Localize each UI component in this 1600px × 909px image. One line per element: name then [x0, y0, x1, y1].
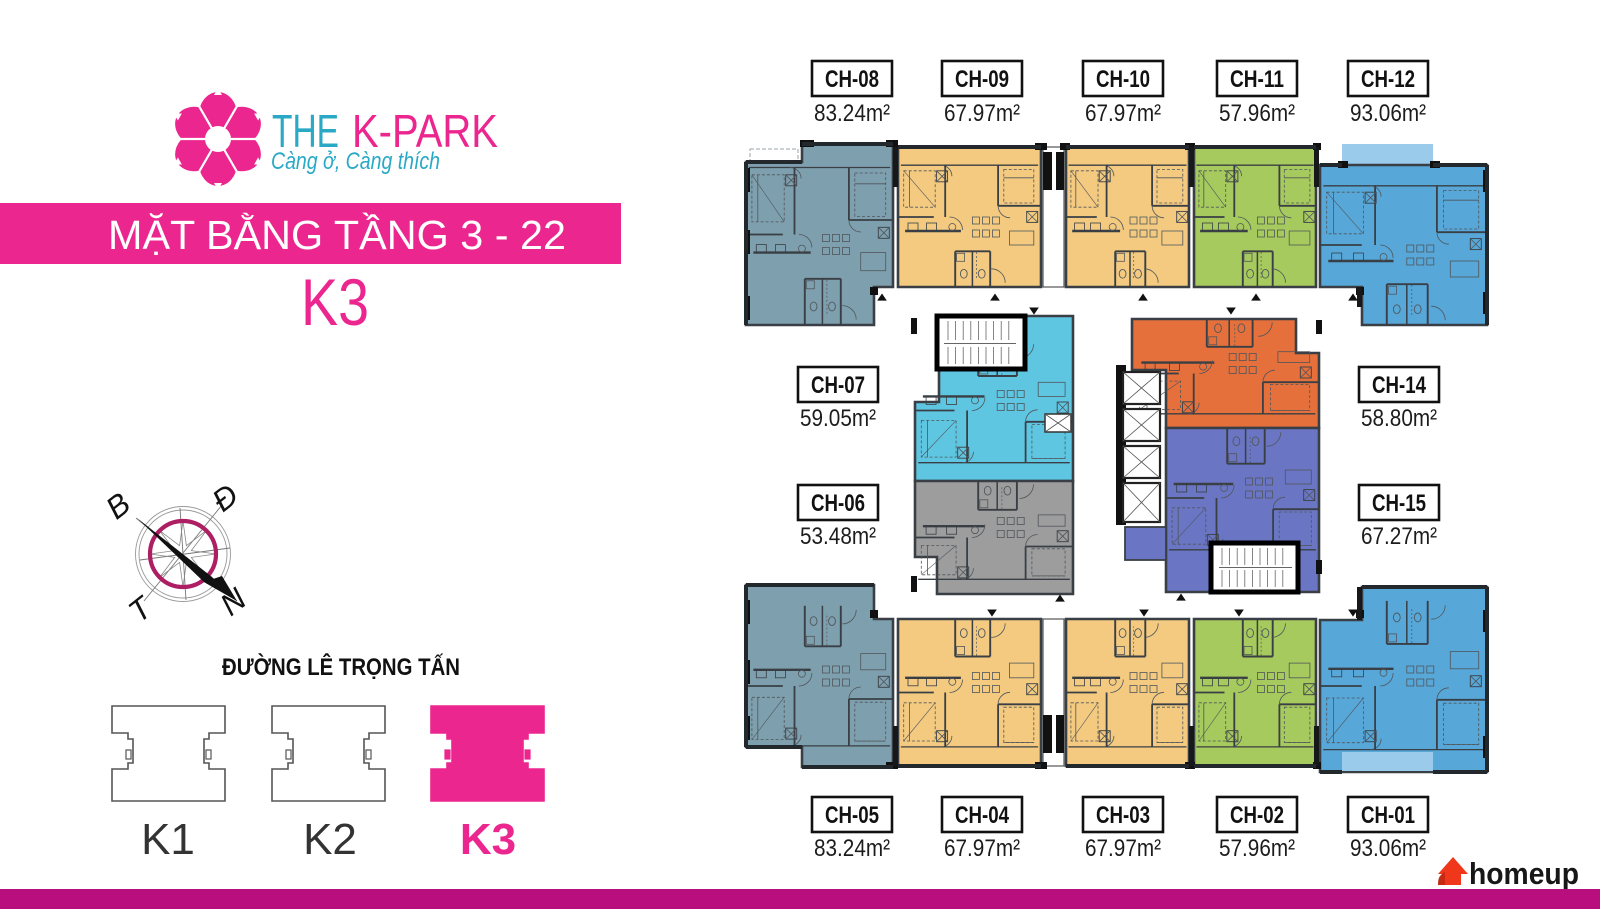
svg-text:67.97m²: 67.97m² [1085, 100, 1161, 127]
svg-text:CH-01: CH-01 [1361, 802, 1415, 829]
svg-text:83.24m²: 83.24m² [814, 100, 890, 127]
svg-text:CH-04: CH-04 [955, 802, 1010, 829]
svg-text:homeup: homeup [1469, 856, 1579, 891]
svg-text:Càng ở, Càng thích: Càng ở, Càng thích [271, 148, 440, 175]
svg-text:CH-14: CH-14 [1372, 372, 1427, 399]
svg-text:57.96m²: 57.96m² [1219, 100, 1295, 127]
svg-text:CH-09: CH-09 [955, 66, 1009, 93]
svg-text:K3: K3 [301, 265, 369, 339]
svg-text:93.06m²: 93.06m² [1350, 835, 1426, 862]
svg-text:59.05m²: 59.05m² [800, 405, 876, 432]
svg-text:67.97m²: 67.97m² [944, 100, 1020, 127]
svg-text:CH-11: CH-11 [1230, 66, 1284, 93]
svg-text:CH-06: CH-06 [811, 490, 865, 517]
svg-text:67.97m²: 67.97m² [1085, 835, 1161, 862]
svg-text:57.96m²: 57.96m² [1219, 835, 1295, 862]
svg-text:67.97m²: 67.97m² [944, 835, 1020, 862]
svg-text:58.80m²: 58.80m² [1361, 405, 1437, 432]
svg-text:67.27m²: 67.27m² [1361, 523, 1437, 550]
svg-text:CH-12: CH-12 [1361, 66, 1415, 93]
svg-text:53.48m²: 53.48m² [800, 523, 876, 550]
svg-text:83.24m²: 83.24m² [814, 835, 890, 862]
svg-text:CH-08: CH-08 [825, 66, 879, 93]
svg-text:CH-10: CH-10 [1096, 66, 1150, 93]
svg-text:K2: K2 [303, 815, 357, 864]
svg-text:ĐƯỜNG LÊ TRỌNG TẤN: ĐƯỜNG LÊ TRỌNG TẤN [222, 653, 460, 681]
svg-text:CH-05: CH-05 [825, 802, 879, 829]
svg-text:CH-07: CH-07 [811, 372, 865, 399]
svg-text:93.06m²: 93.06m² [1350, 100, 1426, 127]
svg-text:K3: K3 [460, 815, 516, 864]
svg-text:K1: K1 [141, 815, 195, 864]
svg-text:CH-02: CH-02 [1230, 802, 1284, 829]
svg-text:CH-03: CH-03 [1096, 802, 1150, 829]
svg-text:CH-15: CH-15 [1372, 490, 1426, 517]
svg-text:MẶT BẰNG TẦNG 3 - 22: MẶT BẰNG TẦNG 3 - 22 [108, 212, 566, 258]
